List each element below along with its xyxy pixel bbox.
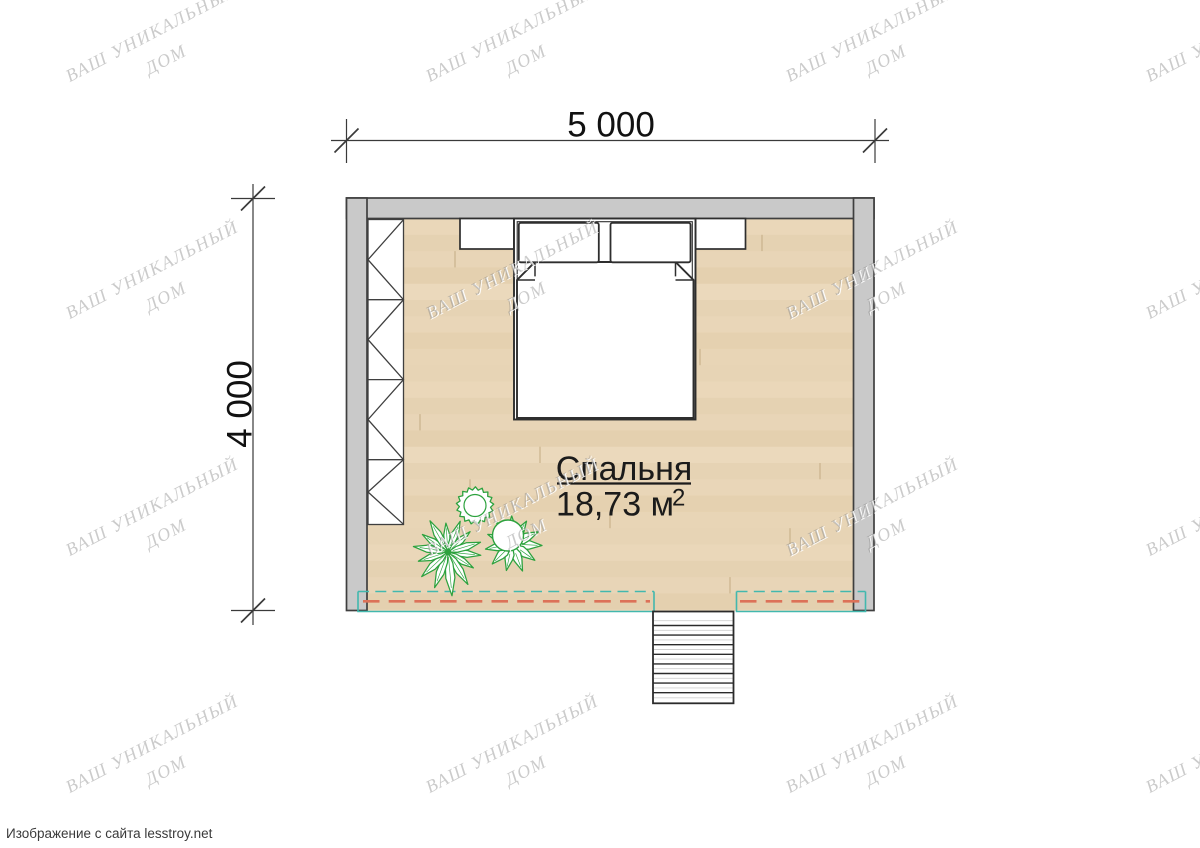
svg-text:5 000: 5 000: [567, 106, 655, 145]
svg-text:2: 2: [672, 485, 685, 512]
svg-text:4 000: 4 000: [221, 360, 260, 448]
